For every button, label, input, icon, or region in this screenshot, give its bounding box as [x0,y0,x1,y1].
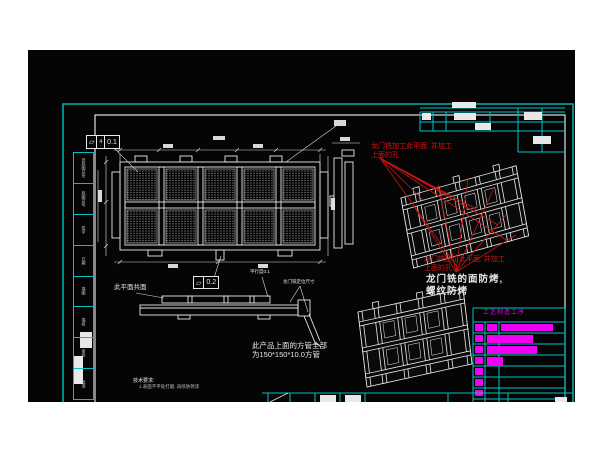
margin-cell: 日期 [74,246,93,277]
plan-view-hatch-panels [127,169,313,243]
margin-cell: 签字 [74,215,93,246]
cad-viewer-page: 旧底图总号 底图总号 签字 日期 描图 描校 审核 批准 ⏥ 4 0.1 ⏥ 0… [0,0,600,450]
margin-cell: 旧底图总号 [74,153,93,184]
tech-requirements: 技术要求: 1.表面不平处打磨, 再喷防锈漆 [133,378,199,390]
flatness-icon: ⏥ [194,277,204,288]
margin-cell: 审核 [74,338,93,369]
red-machining-note-top: 龙门铣加工此平面, 并加工 上面的孔 [371,143,452,161]
process-block-header: 工艺制造工序 [483,310,525,318]
margin-cell: 底图总号 [74,184,93,215]
section-view [330,137,360,248]
gantry-dim-label: 龙门铣定位尺寸 [283,279,315,285]
flatness-tolerance-frame-bottom: ⏥ 0.2 [193,276,219,289]
fcf-datum: 4 [97,136,105,148]
left-margin-strip: 旧底图总号 底图总号 签字 日期 描图 描校 审核 批准 [73,152,94,400]
margin-cell: 批准 [74,369,93,399]
coplanar-label: 此平面共面 [114,284,147,292]
flatness-icon: ⏥ [87,136,97,148]
cad-canvas: 旧底图总号 底图总号 签字 日期 描图 描校 审核 批准 ⏥ 4 0.1 ⏥ 0… [28,50,575,402]
fcf-value: 0.1 [105,136,119,148]
process-title-block [473,308,565,402]
flatness-tolerance-frame-top: ⏥ 4 0.1 [86,135,120,149]
margin-cell: 描校 [74,307,93,338]
process-entries [475,324,553,396]
iso-view-bottom [357,283,472,387]
square-tube-note: 此产品上面的方管全部 为150*150*10.0方管 [252,341,327,360]
fcf-value: 0.2 [204,277,218,288]
bottom-table [262,393,573,402]
elevation-view [140,296,321,347]
red-machining-note-bottom: 龙门铣加工此平面, 并加工 上面的孔 [424,256,505,274]
face-protection-note: 龙门铣的面防烤, 螺纹防烤 [426,274,503,298]
parallelism-label: 平行度0.1 [250,269,270,275]
margin-cell: 描图 [74,277,93,308]
